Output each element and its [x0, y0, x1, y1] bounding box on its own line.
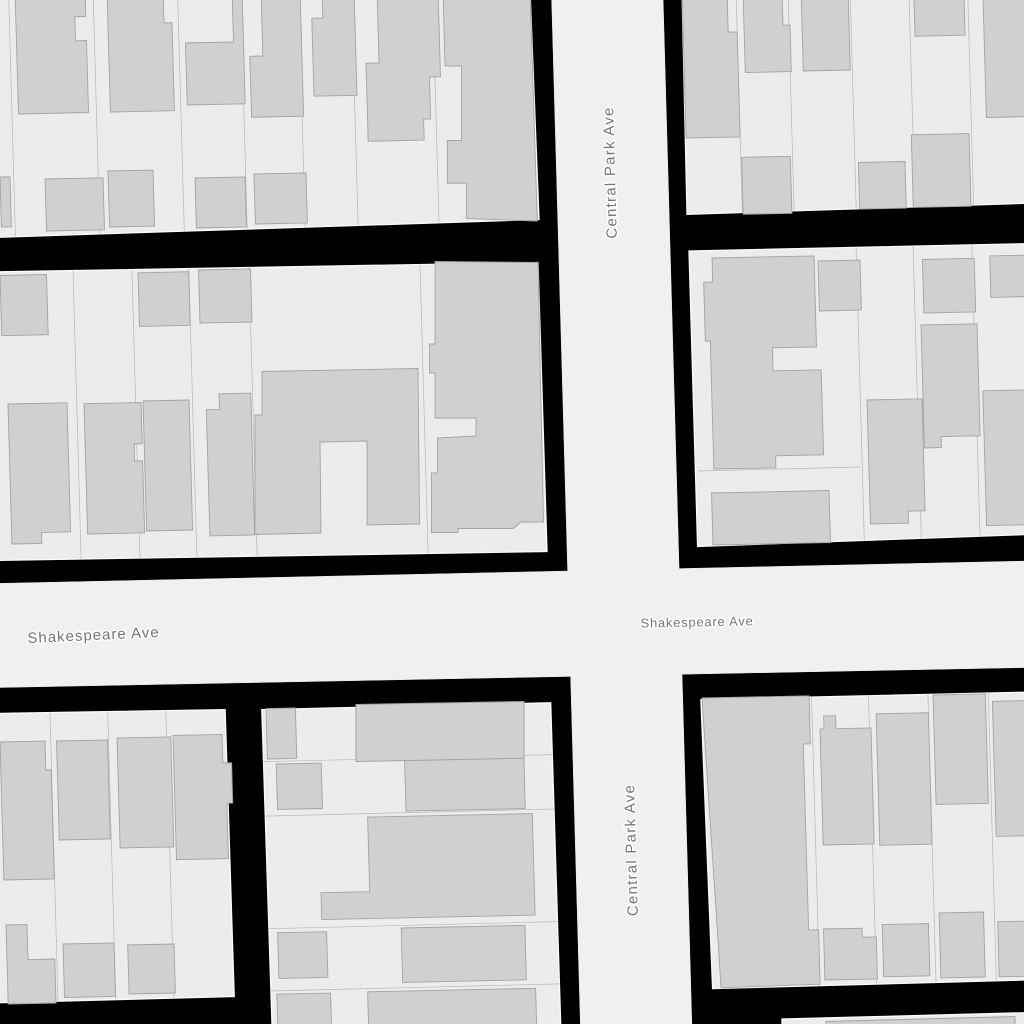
svg-text:Shakespeare Ave: Shakespeare Ave: [640, 613, 753, 630]
